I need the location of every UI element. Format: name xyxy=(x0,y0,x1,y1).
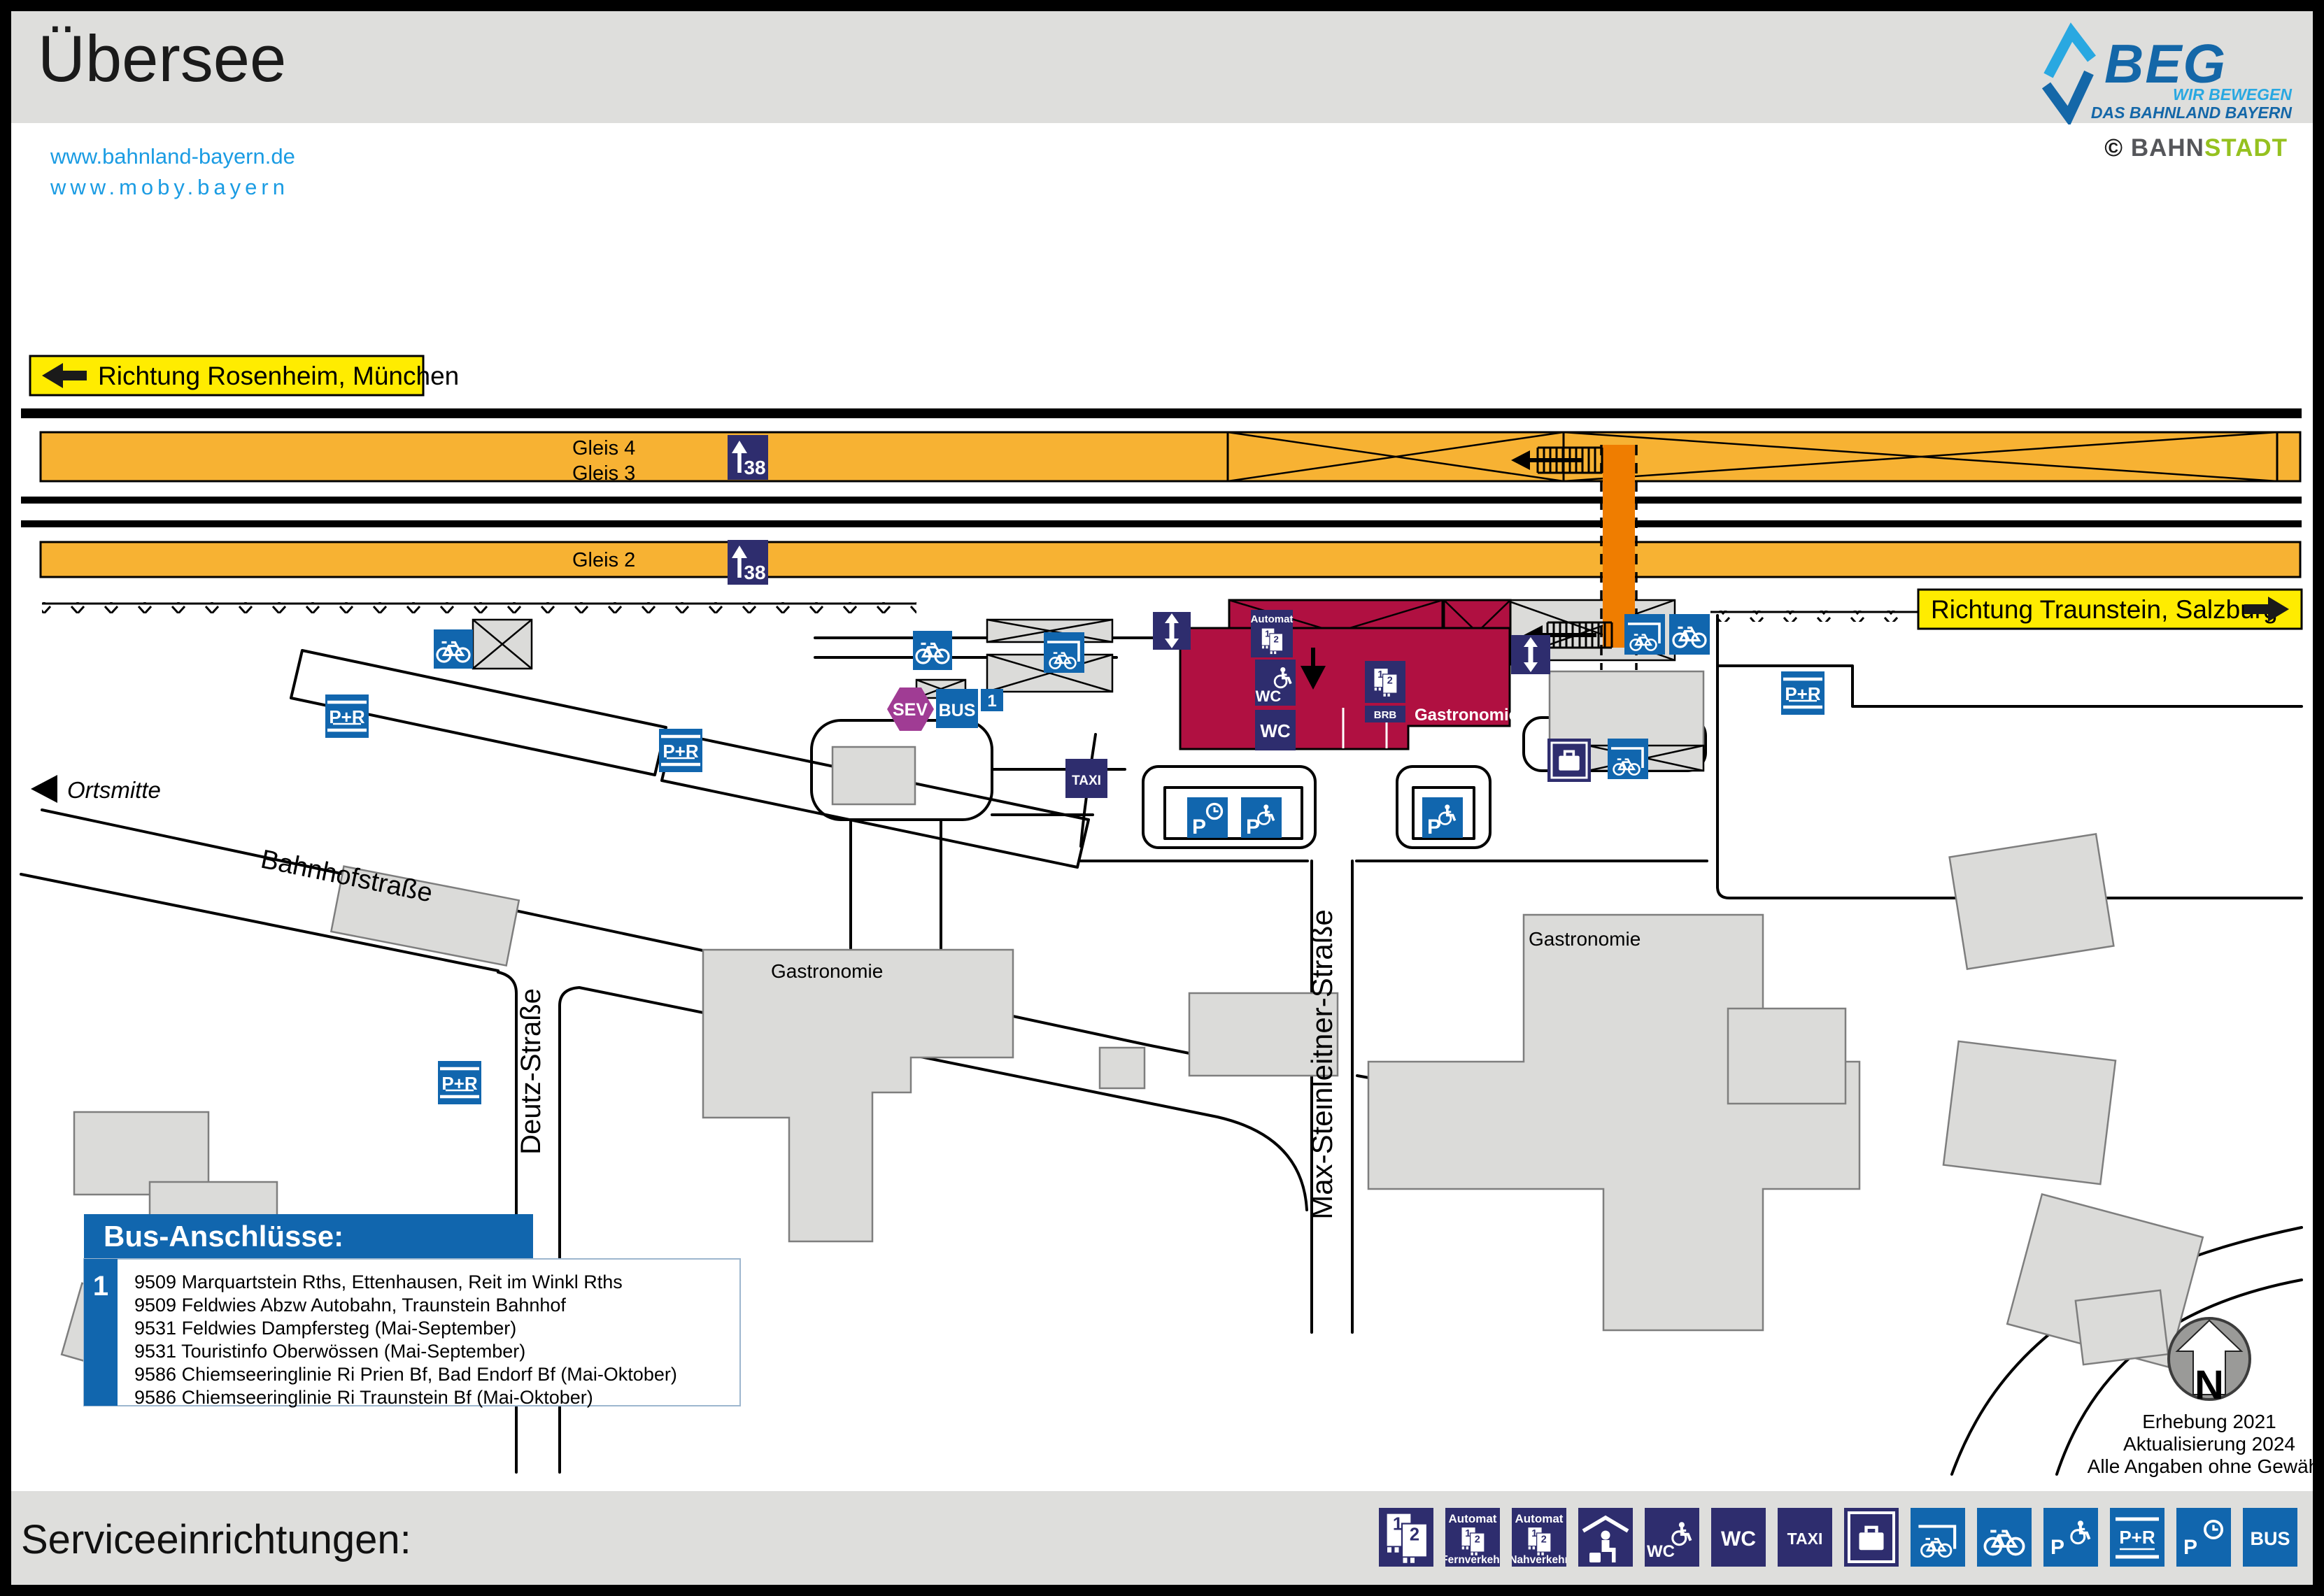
svg-text:P: P xyxy=(2183,1536,2197,1559)
service-legend: Automat Fernverkehr Automat Nahverkehr W… xyxy=(1379,1508,2297,1567)
svg-text:38: 38 xyxy=(744,457,765,478)
link-bahnland-bayern[interactable]: www.bahnland-bayern.de xyxy=(50,141,295,172)
legend-ticket-machine-longdistance-icon: Automat Fernverkehr xyxy=(1445,1508,1500,1567)
svg-text:WC: WC xyxy=(1260,720,1291,741)
park-ride-icon: P+R xyxy=(325,694,369,738)
svg-text:P+R: P+R xyxy=(663,741,699,762)
beg-tagline-1: WIR BEWEGEN xyxy=(2173,85,2292,104)
taxi-icon: TAXI xyxy=(1065,759,1107,798)
svg-text:Automat: Automat xyxy=(1515,1512,1564,1525)
beg-logo: BEG WIR BEWEGEN DAS BAHNLAND BAYERN xyxy=(2040,14,2292,120)
svg-text:Automat: Automat xyxy=(1449,1512,1497,1525)
svg-text:SEV: SEV xyxy=(893,700,928,720)
svg-text:38: 38 xyxy=(744,562,765,583)
bahnstadt-stadt: STADT xyxy=(2204,134,2288,162)
bike-parking-icon xyxy=(1669,614,1710,655)
station-plan-page: 1 2 xyxy=(0,0,2324,1596)
legend-waiting-area-icon xyxy=(1578,1508,1633,1567)
station-building: Gastronomie xyxy=(1180,600,1518,749)
deutz-strasse-label: Deutz-Straße xyxy=(516,988,546,1155)
direction-sign-east: Richtung Traunstein, Salzburg xyxy=(1918,590,2302,629)
covered-bike-parking-icon xyxy=(1608,739,1648,779)
svg-text:TAXI: TAXI xyxy=(1787,1530,1823,1548)
svg-text:WC: WC xyxy=(1721,1527,1756,1551)
max-steinleitner-strasse-label: Max-Steinleitner-Straße xyxy=(1305,909,1338,1219)
gastronomie-station-label: Gastronomie xyxy=(1415,706,1518,725)
stepless-access-icon xyxy=(1153,612,1191,650)
svg-text:BUS: BUS xyxy=(939,701,976,720)
note-update: Aktualisierung 2024 xyxy=(2123,1433,2295,1455)
platform-height-icon: 38 xyxy=(728,540,768,585)
bus-line: 9586 Chiemseeringlinie Ri Traunstein Bf … xyxy=(134,1387,593,1408)
bus-connections-box: Bus-Anschlüsse: 1 9509 Marquartstein Rth… xyxy=(84,1214,740,1408)
svg-text:TAXI: TAXI xyxy=(1072,774,1101,788)
gastronomie-west-label: Gastronomie xyxy=(771,960,883,982)
gleis-2-label: Gleis 2 xyxy=(572,549,635,571)
platform-gleis-2: Gleis 2 xyxy=(41,542,2300,577)
platform-height-icon: 38 xyxy=(728,435,768,480)
link-moby-bayern[interactable]: www.moby.bayern xyxy=(50,172,295,203)
legend-bus-icon: BUS xyxy=(2243,1508,2297,1567)
svg-text:WC: WC xyxy=(1647,1542,1675,1561)
beg-diamond-icon xyxy=(2040,20,2097,124)
park-ride-icon: P+R xyxy=(1781,671,1825,715)
legend-short-term-parking-icon: P xyxy=(2176,1508,2231,1567)
svg-text:N: N xyxy=(2195,1362,2224,1408)
svg-text:P+R: P+R xyxy=(1785,683,1821,704)
bus-stop-icon: BUS xyxy=(936,689,978,728)
bahnstadt-credit: © BAHNSTADT xyxy=(2104,134,2288,162)
svg-text:BRB: BRB xyxy=(1374,709,1397,721)
legend-lockers-icon xyxy=(1844,1508,1899,1567)
stepless-access-icon xyxy=(1511,635,1550,674)
legend-wc-icon: WC xyxy=(1711,1508,1766,1567)
bus-line: 9531 Touristinfo Oberwössen (Mai-Septemb… xyxy=(134,1341,525,1362)
legend-ticket-counter-icon xyxy=(1379,1508,1433,1567)
bus-line: 9509 Marquartstein Rths, Ettenhausen, Re… xyxy=(134,1271,623,1292)
park-ride-icon: P+R xyxy=(659,729,702,772)
bike-parking-icon xyxy=(434,629,473,669)
svg-text:P+R: P+R xyxy=(329,706,365,727)
platform-gleis-4-3: Gleis 4 Gleis 3 xyxy=(41,432,2300,485)
building-gastronomie-west xyxy=(703,950,1013,1241)
legend-ticket-machine-regional-icon: Automat Nahverkehr xyxy=(1512,1508,1566,1567)
sign-west-label: Richtung Rosenheim, München xyxy=(98,362,459,390)
note-survey: Erhebung 2021 xyxy=(2142,1411,2276,1432)
legend-accessible-parking-icon: P xyxy=(2043,1508,2098,1567)
legend-bike-icon xyxy=(1977,1508,2032,1567)
bus-line: 9586 Chiemseeringlinie Ri Prien Bf, Bad … xyxy=(134,1364,677,1385)
svg-text:Automat: Automat xyxy=(1251,613,1294,625)
bus-box-stop-number: 1 xyxy=(93,1271,108,1302)
bahnstadt-bahn: BAHN xyxy=(2131,134,2204,162)
bus-stop-number: 1 xyxy=(981,689,1003,711)
wc-icon: WC xyxy=(1255,710,1296,750)
svg-text:Fernverkehr: Fernverkehr xyxy=(1445,1554,1500,1566)
accessible-parking-icon: P xyxy=(1422,797,1463,839)
sign-east-label: Richtung Traunstein, Salzburg xyxy=(1931,595,2278,624)
brb-ticket-machine-icon: BRB xyxy=(1365,661,1405,722)
building-gastronomie-east xyxy=(1368,915,1859,1330)
svg-text:P+R: P+R xyxy=(2119,1527,2155,1548)
covered-bike-parking-icon xyxy=(1044,632,1084,673)
legend-wc-accessible-icon: WC xyxy=(1645,1508,1699,1567)
note-disclaimer: Alle Angaben ohne Gewähr! xyxy=(2088,1455,2313,1477)
bus-box-title: Bus-Anschlüsse: xyxy=(104,1220,343,1253)
bike-parking-icon xyxy=(913,631,952,670)
svg-text:P+R: P+R xyxy=(441,1073,478,1094)
gleis-3-label: Gleis 3 xyxy=(572,462,635,485)
beg-tagline-2: DAS BAHNLAND BAYERN xyxy=(2091,104,2292,122)
legend-covered-bike-icon xyxy=(1911,1508,1965,1567)
lockers-icon xyxy=(1547,739,1591,782)
header-bar: Übersee BEG WIR BEWEGEN DAS BAHNLAND BAY… xyxy=(11,11,2313,123)
north-arrow: N xyxy=(2169,1318,2250,1408)
accessible-parking-icon: P xyxy=(1241,797,1282,839)
street-labels: Bahnhofstraße Deutz-Straße Max-Steinleit… xyxy=(31,775,1338,1220)
footer-title: Serviceeinrichtungen: xyxy=(21,1516,411,1563)
copyright-symbol: © xyxy=(2104,134,2123,162)
svg-text:WC: WC xyxy=(1256,687,1282,705)
short-term-parking-icon: P xyxy=(1187,797,1228,839)
svg-text:P: P xyxy=(1192,815,1206,839)
website-links: www.bahnland-bayern.de www.moby.bayern xyxy=(50,141,295,203)
wc-accessible-icon: WC xyxy=(1255,660,1296,706)
station-map: Gleis 4 Gleis 3 Gleis 2 xyxy=(11,11,2313,1585)
legend-park-ride-icon: P+R xyxy=(2110,1508,2164,1567)
page-title: Übersee xyxy=(38,21,286,97)
svg-text:P: P xyxy=(2050,1536,2064,1559)
bus-line: 9531 Feldwies Dampfersteg (Mai-September… xyxy=(134,1318,516,1339)
ortsmitte-pointer: Ortsmitte xyxy=(31,775,161,803)
svg-text:BUS: BUS xyxy=(2250,1528,2290,1549)
park-ride-icon: P+R xyxy=(438,1061,481,1104)
gastronomie-east-label: Gastronomie xyxy=(1529,928,1641,950)
svg-text:1: 1 xyxy=(987,692,996,711)
svg-text:Nahverkehr: Nahverkehr xyxy=(1512,1554,1566,1566)
footer-bar: Serviceeinrichtungen: Automat Fernverkeh… xyxy=(11,1491,2313,1585)
map-notes: Erhebung 2021 Aktualisierung 2024 Alle A… xyxy=(2088,1411,2313,1477)
legend-taxi-icon: TAXI xyxy=(1778,1508,1832,1567)
ticket-machine-icon: Automat xyxy=(1251,610,1294,657)
bus-line: 9509 Feldwies Abzw Autobahn, Traunstein … xyxy=(134,1295,566,1316)
gleis-4-label: Gleis 4 xyxy=(572,437,635,459)
direction-sign-west: Richtung Rosenheim, München xyxy=(30,356,459,395)
ortsmitte-label: Ortsmitte xyxy=(67,777,161,803)
covered-bike-parking-icon xyxy=(1624,614,1665,655)
